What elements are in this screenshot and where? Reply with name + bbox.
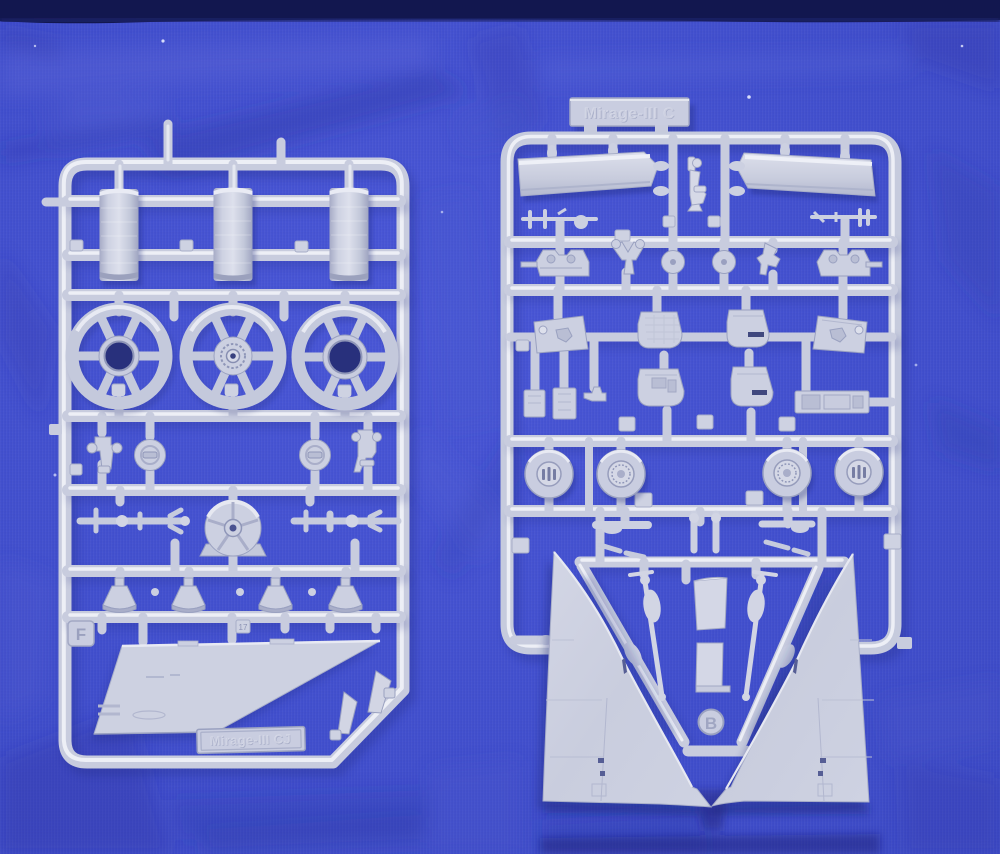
svg-text:17: 17 [239, 623, 248, 632]
svg-text:Mirage-III CJ: Mirage-III CJ [210, 731, 292, 748]
svg-text:Mirage-III C: Mirage-III C [584, 105, 675, 122]
svg-text:F: F [76, 625, 86, 644]
svg-text:B: B [705, 714, 717, 733]
